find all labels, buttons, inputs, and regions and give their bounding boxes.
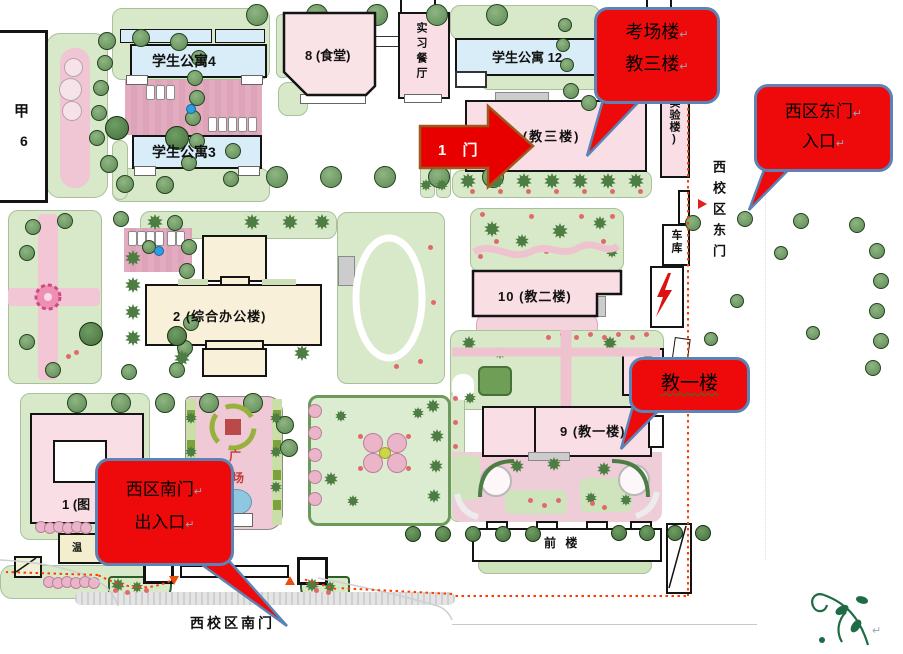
tree-icon [116, 175, 134, 193]
flower-icon [544, 249, 549, 254]
garden9-pond [478, 366, 512, 396]
tree-icon [806, 326, 820, 340]
shed [14, 556, 42, 578]
tree-icon [93, 80, 109, 96]
bottom-faint-line [452, 624, 757, 625]
building-1-label: 1 (图 [62, 494, 90, 513]
tree-icon [366, 4, 388, 26]
bush-icon [88, 577, 100, 589]
building-apt3-label: 学生公寓3 [152, 142, 216, 162]
flower-icon [554, 189, 559, 194]
bush-icon [308, 404, 322, 418]
building-practice-restaurant-label: 实习餐厅 [413, 22, 429, 82]
flower-icon [428, 245, 433, 250]
tree-icon [704, 332, 718, 346]
car-icon [248, 117, 257, 132]
tree-icon [89, 130, 105, 146]
flower-icon [556, 498, 561, 503]
tree-icon [25, 219, 41, 235]
building-jia6-label-1: 甲 [14, 100, 29, 121]
callout-south-gate-line1: 西区南门↵ [98, 475, 231, 500]
car-icon [156, 85, 165, 100]
tree-icon [67, 393, 87, 413]
tree-icon [167, 215, 183, 231]
flourish-ornament [812, 594, 868, 645]
jia-circle3 [62, 101, 82, 121]
marker-dot-icon [154, 246, 164, 256]
tree-icon [639, 525, 655, 541]
flower-icon [453, 396, 458, 401]
apt3-tab1 [134, 166, 156, 176]
tree-icon [121, 364, 137, 380]
practice-porch [404, 94, 442, 103]
tree-icon [199, 393, 219, 413]
star-tree-icon [125, 277, 141, 293]
apt4-tab2 [241, 75, 263, 85]
building-apt4-label: 学生公寓4 [152, 51, 216, 71]
flower-icon [326, 590, 331, 595]
tree-icon [793, 213, 809, 229]
tree-icon [246, 4, 268, 26]
lawn-garden-a [337, 212, 445, 384]
star-tree-icon [125, 330, 141, 346]
car-icon [166, 85, 175, 100]
tree-icon [685, 215, 701, 231]
building-office-top-wing [202, 235, 267, 282]
building-jiao1-label: 9 (教一楼) [560, 421, 626, 440]
flower-icon [74, 350, 79, 355]
tree-icon [563, 83, 579, 99]
car-icon [238, 117, 247, 132]
tree-icon [187, 70, 203, 86]
tree-icon [581, 95, 597, 111]
callout-east-gate-line1: 西区东门↵ [757, 97, 890, 122]
car-icon [128, 231, 137, 246]
flower-icon [480, 212, 485, 217]
flower-icon [630, 335, 635, 340]
flower-icon [638, 189, 643, 194]
campus-map: 甲 6 学生公寓4 学生公寓3 8 (食堂) 实习餐厅 学生公寓 12 1 (教… [0, 0, 903, 654]
gate1-arrow-label: 1 门 [438, 139, 484, 160]
gate-marker-up [285, 576, 295, 585]
tree-icon [156, 176, 174, 194]
tree-icon [865, 360, 881, 376]
car-icon [218, 117, 227, 132]
tree-icon [600, 104, 614, 118]
right-faint-dotted [765, 170, 766, 560]
bush-icon [308, 470, 322, 484]
tree-icon [486, 4, 508, 26]
callout-south-gate[interactable]: 西区南门↵ 出入口↵ [95, 458, 234, 566]
substation-box [650, 266, 684, 328]
tree-icon [100, 155, 118, 173]
tree-icon [19, 334, 35, 350]
flower-icon [66, 354, 71, 359]
flower-icon [542, 503, 547, 508]
tree-icon [113, 211, 129, 227]
tree-icon [225, 143, 241, 159]
flower-icon [574, 335, 579, 340]
tree-icon [611, 525, 627, 541]
flower-icon [113, 588, 118, 593]
flower-icon [144, 588, 149, 593]
bush-icon [308, 448, 322, 462]
building-office-label: 2 (综合办公楼) [173, 306, 267, 325]
plaza-center-square [225, 419, 241, 435]
flower-icon [358, 434, 363, 439]
jia-circle2 [59, 78, 82, 101]
flower-icon [478, 254, 483, 259]
plaza-label-1: 广 [229, 447, 241, 464]
tree-icon [19, 245, 35, 261]
flower-icon [529, 214, 534, 219]
callout-exam[interactable]: 考场楼↵ 教三楼↵ [594, 7, 720, 104]
lawn-canteen-left [276, 14, 290, 78]
flourish-return-mark: ↵ [872, 624, 881, 637]
flower-icon [358, 466, 363, 471]
hedge-block-icon [273, 500, 281, 510]
garden-a-structure [338, 256, 355, 286]
tree-icon [426, 4, 448, 26]
flower-icon [526, 189, 531, 194]
callout-east-gate-line2: 入口↵ [757, 127, 890, 152]
building-jiao2-label: 10 (教二楼) [498, 286, 572, 305]
tree-icon [374, 166, 396, 188]
flower-icon [498, 189, 503, 194]
building-garage-label: 车库 [668, 229, 684, 255]
flower-icon [431, 300, 436, 305]
flower-icon [582, 189, 587, 194]
callout-jiao1-label: 教一楼 [661, 373, 718, 394]
flower-icon [602, 335, 607, 340]
building-jiao3-label: 1 (教三楼) [508, 126, 581, 145]
flower-icon [579, 214, 584, 219]
tree-icon [737, 211, 753, 227]
building-front-label: 前 楼 [544, 534, 580, 551]
flower-icon [528, 498, 533, 503]
tree-icon [730, 294, 744, 308]
building-greenhouse-label: 温 [72, 539, 82, 554]
east-gate-flag-icon [698, 199, 707, 209]
lawn-apt12-top [450, 5, 600, 40]
flower-icon [394, 364, 399, 369]
callout-exam-line1: 考场楼↵ [597, 18, 717, 44]
apt4-tab1 [126, 75, 148, 85]
tree-icon [223, 171, 239, 187]
tree-icon [695, 525, 711, 541]
jia-circle1 [64, 58, 83, 77]
building-office-bottom-wing [202, 348, 267, 377]
apt12-tab [455, 71, 487, 88]
flower-icon [453, 420, 458, 425]
tree-icon [560, 58, 574, 72]
fountain-right [618, 464, 650, 496]
tree-icon [243, 393, 263, 413]
tree-icon [525, 526, 541, 542]
tree-icon [266, 166, 288, 188]
hedge-block-icon [273, 470, 281, 480]
star-tree-icon [294, 345, 310, 361]
flower-icon [406, 434, 411, 439]
left-garden-path-v [38, 214, 58, 380]
flower-icon [560, 332, 565, 337]
gate-marker-down [169, 576, 179, 585]
tree-icon [306, 4, 328, 26]
tree-icon [179, 263, 195, 279]
south-road [75, 592, 455, 605]
tree-icon [849, 217, 865, 233]
tree-icon [435, 526, 451, 542]
flower-icon [453, 444, 458, 449]
marker-dot-icon [186, 104, 196, 114]
bush-icon [308, 492, 322, 506]
flower-icon [546, 335, 551, 340]
star-tree-icon [125, 304, 141, 320]
tree-icon [320, 166, 342, 188]
flower-icon [125, 590, 130, 595]
flower-icon [494, 239, 499, 244]
car-icon [167, 231, 176, 246]
callout-exam-line2: 教三楼↵ [597, 50, 717, 76]
jiao2-side-structure [597, 296, 606, 317]
tree-icon [155, 393, 175, 413]
fountain-left [480, 465, 512, 497]
bush-icon [80, 522, 92, 534]
flower-icon [588, 332, 593, 337]
flower-icon [314, 588, 319, 593]
tree-icon [667, 525, 683, 541]
building-apt4-wing2 [215, 29, 265, 43]
apt3-tab2 [238, 166, 260, 176]
tree-icon [98, 32, 116, 50]
flower-icon [616, 332, 621, 337]
office-tab1 [178, 279, 208, 285]
callout-south-gate-line2: 出入口↵ [98, 508, 231, 533]
flower-icon [418, 359, 423, 364]
tree-icon [869, 303, 885, 319]
building-apt12-label: 学生公寓 12 [492, 47, 562, 66]
car-icon [208, 117, 217, 132]
flower-icon [601, 239, 606, 244]
tree-icon [465, 526, 481, 542]
car-icon [228, 117, 237, 132]
tree-icon [869, 243, 885, 259]
flower-icon [644, 332, 649, 337]
jiao1-porch [528, 452, 570, 461]
canteen-porch [300, 94, 366, 104]
building-jiao1-divider [534, 406, 536, 453]
east-gate-label: 西校区东门 [709, 160, 728, 265]
flower-icon [590, 501, 595, 506]
flower-icon [406, 466, 411, 471]
south-gate-bar [180, 565, 289, 578]
office-tab2 [262, 279, 296, 285]
tree-icon [181, 239, 197, 255]
flower-icon [610, 214, 615, 219]
tree-icon [45, 362, 61, 378]
building-jiao1-annex [648, 415, 664, 448]
tree-icon [873, 273, 889, 289]
tree-icon [774, 246, 788, 260]
tree-icon [495, 526, 511, 542]
tree-icon [558, 18, 572, 32]
flower-icon [470, 189, 475, 194]
tree-icon [873, 333, 889, 349]
tree-icon [170, 33, 188, 51]
tree-icon [280, 439, 298, 457]
tree-icon [91, 105, 107, 121]
tree-icon [105, 116, 129, 140]
flower-icon [602, 505, 607, 510]
car-icon [146, 85, 155, 100]
plaza9-patch3 [452, 455, 480, 500]
tree-icon [97, 55, 113, 71]
tree-icon [405, 526, 421, 542]
callout-jiao1[interactable]: 教一楼 [629, 357, 750, 413]
tree-icon [57, 213, 73, 229]
flower-icon [610, 189, 615, 194]
tree-icon [79, 322, 103, 346]
tree-icon [111, 393, 131, 413]
car-icon [155, 231, 164, 246]
building-jia6-label-2: 6 [20, 133, 28, 149]
building-canteen-label: 8 (食堂) [305, 45, 351, 64]
flower-center-icon [379, 447, 391, 459]
tree-icon [132, 29, 150, 47]
tree-icon [167, 326, 187, 346]
south-gate-label: 西校区南门 [190, 613, 275, 633]
callout-east-gate[interactable]: 西区东门↵ 入口↵ [754, 84, 893, 172]
bush-icon [308, 426, 322, 440]
